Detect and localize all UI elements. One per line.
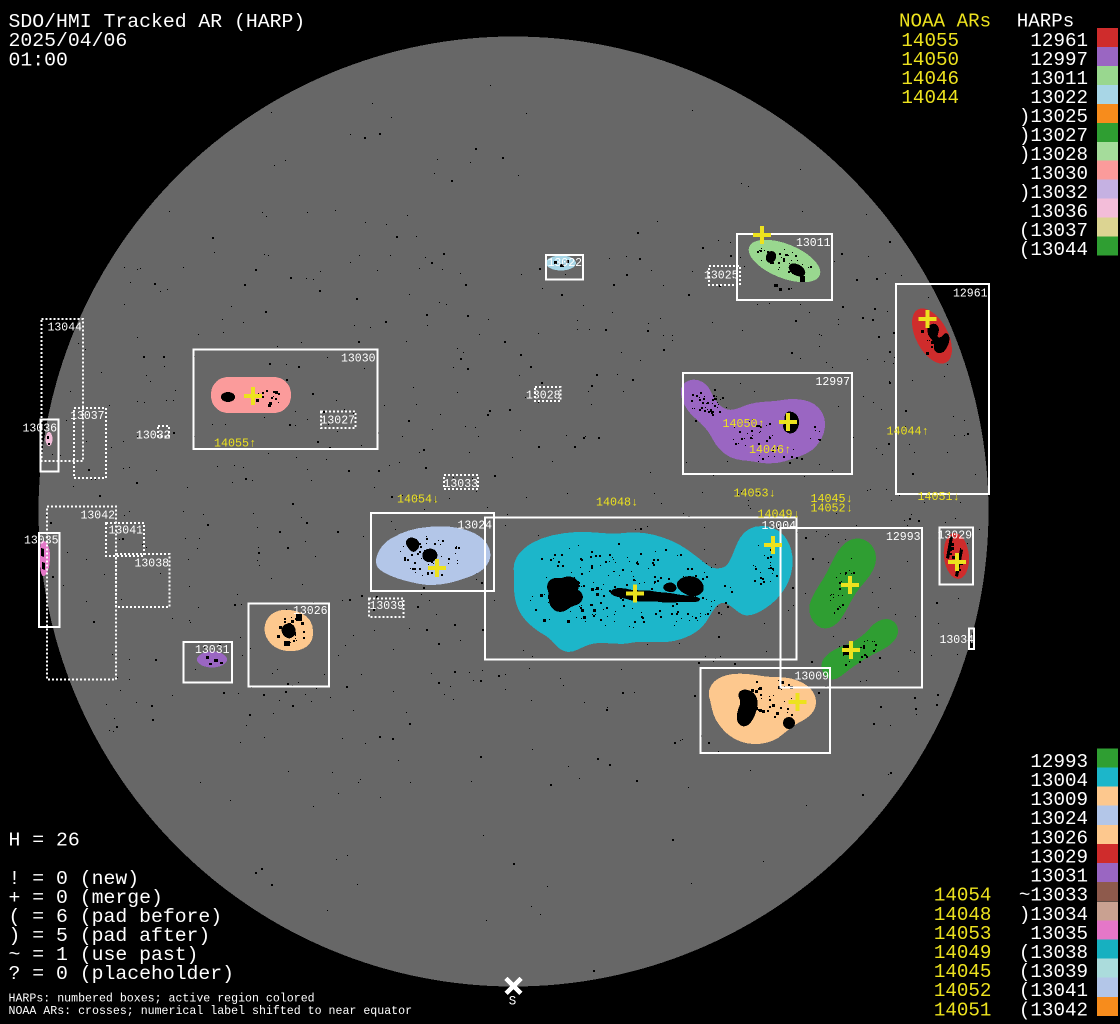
svg-text:S: S xyxy=(509,995,517,1009)
svg-text:H = 26: H = 26 xyxy=(9,830,80,852)
svg-text:13028: 13028 xyxy=(526,390,561,403)
svg-text:13032: 13032 xyxy=(136,430,171,443)
svg-text:13035: 13035 xyxy=(24,535,59,548)
svg-text:14055↑: 14055↑ xyxy=(214,437,256,451)
svg-text:13027: 13027 xyxy=(320,415,355,428)
svg-text:14049↓: 14049↓ xyxy=(758,508,800,522)
svg-text:14052↓: 14052↓ xyxy=(811,502,853,516)
svg-text:13026: 13026 xyxy=(293,605,328,618)
svg-text:13025: 13025 xyxy=(704,270,739,283)
svg-text:13022: 13022 xyxy=(547,257,582,270)
svg-text:13037: 13037 xyxy=(70,410,105,423)
svg-text:14048↓: 14048↓ xyxy=(596,496,638,510)
svg-text:13024: 13024 xyxy=(457,520,492,533)
svg-text:12997: 12997 xyxy=(815,376,850,389)
svg-text:13036: 13036 xyxy=(22,422,57,435)
svg-text:13029: 13029 xyxy=(937,530,972,543)
svg-text:13033: 13033 xyxy=(443,478,478,491)
svg-text:14046↑: 14046↑ xyxy=(749,443,791,457)
svg-text:13039: 13039 xyxy=(369,600,404,613)
svg-text:13034: 13034 xyxy=(939,634,974,647)
svg-text:13011: 13011 xyxy=(796,237,831,250)
svg-text:14044: 14044 xyxy=(901,87,959,109)
svg-text:01:00: 01:00 xyxy=(9,49,68,71)
svg-text:13030: 13030 xyxy=(341,353,376,366)
svg-text:14054↓: 14054↓ xyxy=(397,493,439,507)
svg-text:14044↑: 14044↑ xyxy=(887,425,929,439)
svg-text:14050↑: 14050↑ xyxy=(723,417,765,431)
svg-text:13031: 13031 xyxy=(195,644,230,657)
svg-text:13042: 13042 xyxy=(80,510,115,523)
svg-text:13009: 13009 xyxy=(794,671,829,684)
svg-text:(13042: (13042 xyxy=(1019,999,1088,1021)
svg-text:13038: 13038 xyxy=(134,558,169,571)
svg-text:? = 0 (placeholder): ? = 0 (placeholder) xyxy=(9,963,235,985)
svg-text:12961: 12961 xyxy=(953,288,988,301)
svg-text:13044: 13044 xyxy=(48,321,83,334)
svg-text:14053↓: 14053↓ xyxy=(734,487,776,501)
svg-text:HARPs: numbered boxes; active: HARPs: numbered boxes; active region col… xyxy=(9,993,315,1006)
svg-text:NOAA ARs: NOAA ARs xyxy=(899,11,991,33)
svg-text:NOAA ARs: crosses; numerical l: NOAA ARs: crosses; numerical label shift… xyxy=(9,1005,413,1018)
svg-text:12993: 12993 xyxy=(886,531,921,544)
svg-text:HARPs: HARPs xyxy=(1017,11,1075,33)
svg-text:13004: 13004 xyxy=(761,520,796,533)
svg-text:14051↓: 14051↓ xyxy=(918,490,960,504)
svg-text:(13044: (13044 xyxy=(1019,239,1088,261)
svg-text:14051: 14051 xyxy=(934,999,992,1021)
svg-text:13041: 13041 xyxy=(108,525,143,538)
